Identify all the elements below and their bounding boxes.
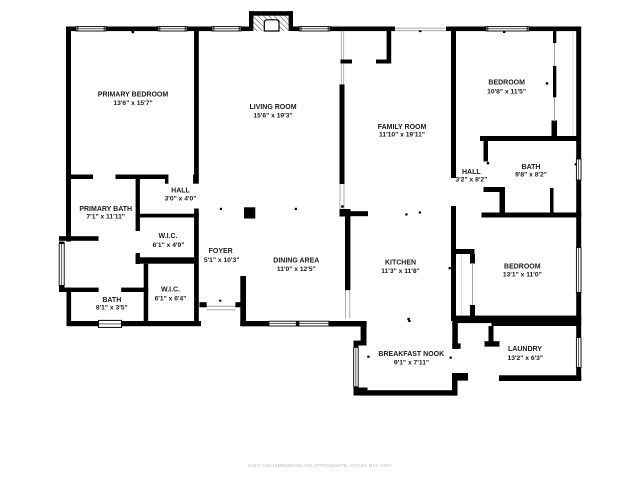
svg-text:BREAKFAST NOOK: BREAKFAST NOOK — [378, 351, 444, 358]
svg-text:BEDROOM: BEDROOM — [504, 263, 541, 270]
svg-text:9'1" x 7'11": 9'1" x 7'11" — [394, 360, 429, 367]
svg-text:11'3" x 11'8": 11'3" x 11'8" — [381, 268, 420, 275]
svg-text:BEDROOM: BEDROOM — [488, 79, 525, 86]
svg-text:5'1" x 10'3": 5'1" x 10'3" — [204, 257, 240, 264]
svg-text:FAMILY ROOM: FAMILY ROOM — [378, 124, 427, 131]
svg-text:DINING AREA: DINING AREA — [273, 257, 319, 264]
svg-text:W.I.C.: W.I.C. — [158, 233, 177, 240]
svg-text:FOYER: FOYER — [209, 248, 233, 255]
svg-text:HALL: HALL — [171, 188, 190, 195]
svg-text:8'1" x 3'5": 8'1" x 3'5" — [96, 305, 128, 312]
svg-text:9'8" x 8'2": 9'8" x 8'2" — [515, 171, 547, 178]
svg-text:6'1" x 4'9": 6'1" x 4'9" — [153, 242, 185, 249]
svg-text:3'0" x 4'0": 3'0" x 4'0" — [165, 196, 197, 203]
svg-text:LAUNDRY: LAUNDRY — [508, 346, 542, 353]
svg-text:10'8" x 11'5": 10'8" x 11'5" — [487, 89, 526, 96]
svg-text:KITCHEN: KITCHEN — [385, 260, 416, 267]
svg-text:6'1" x 6'4": 6'1" x 6'4" — [155, 295, 187, 302]
svg-text:BATH: BATH — [522, 164, 541, 171]
svg-text:PRIMARY BEDROOM: PRIMARY BEDROOM — [98, 92, 169, 99]
svg-text:HALL: HALL — [462, 169, 481, 176]
svg-text:11'0" x 12'5": 11'0" x 12'5" — [277, 266, 316, 273]
svg-text:BATH: BATH — [102, 297, 121, 304]
svg-text:7'1" x 11'11": 7'1" x 11'11" — [86, 213, 125, 220]
svg-text:13'2" x 6'3": 13'2" x 6'3" — [508, 355, 544, 362]
svg-text:13'6" x 15'7": 13'6" x 15'7" — [113, 100, 152, 107]
svg-text:SIZES AND DIMENSIONS ARE APPRO: SIZES AND DIMENSIONS ARE APPROXIMATE, AC… — [247, 463, 392, 468]
svg-text:3'2" x 8'2": 3'2" x 8'2" — [455, 177, 487, 184]
svg-text:LIVING ROOM: LIVING ROOM — [249, 104, 296, 111]
svg-text:15'6" x 19'3": 15'6" x 19'3" — [253, 112, 292, 119]
svg-text:PRIMARY BATH: PRIMARY BATH — [79, 206, 132, 213]
svg-text:W.I.C.: W.I.C. — [161, 287, 180, 294]
svg-text:11'10" x 19'11": 11'10" x 19'11" — [379, 132, 425, 139]
svg-text:13'1" x 11'0": 13'1" x 11'0" — [503, 271, 542, 278]
